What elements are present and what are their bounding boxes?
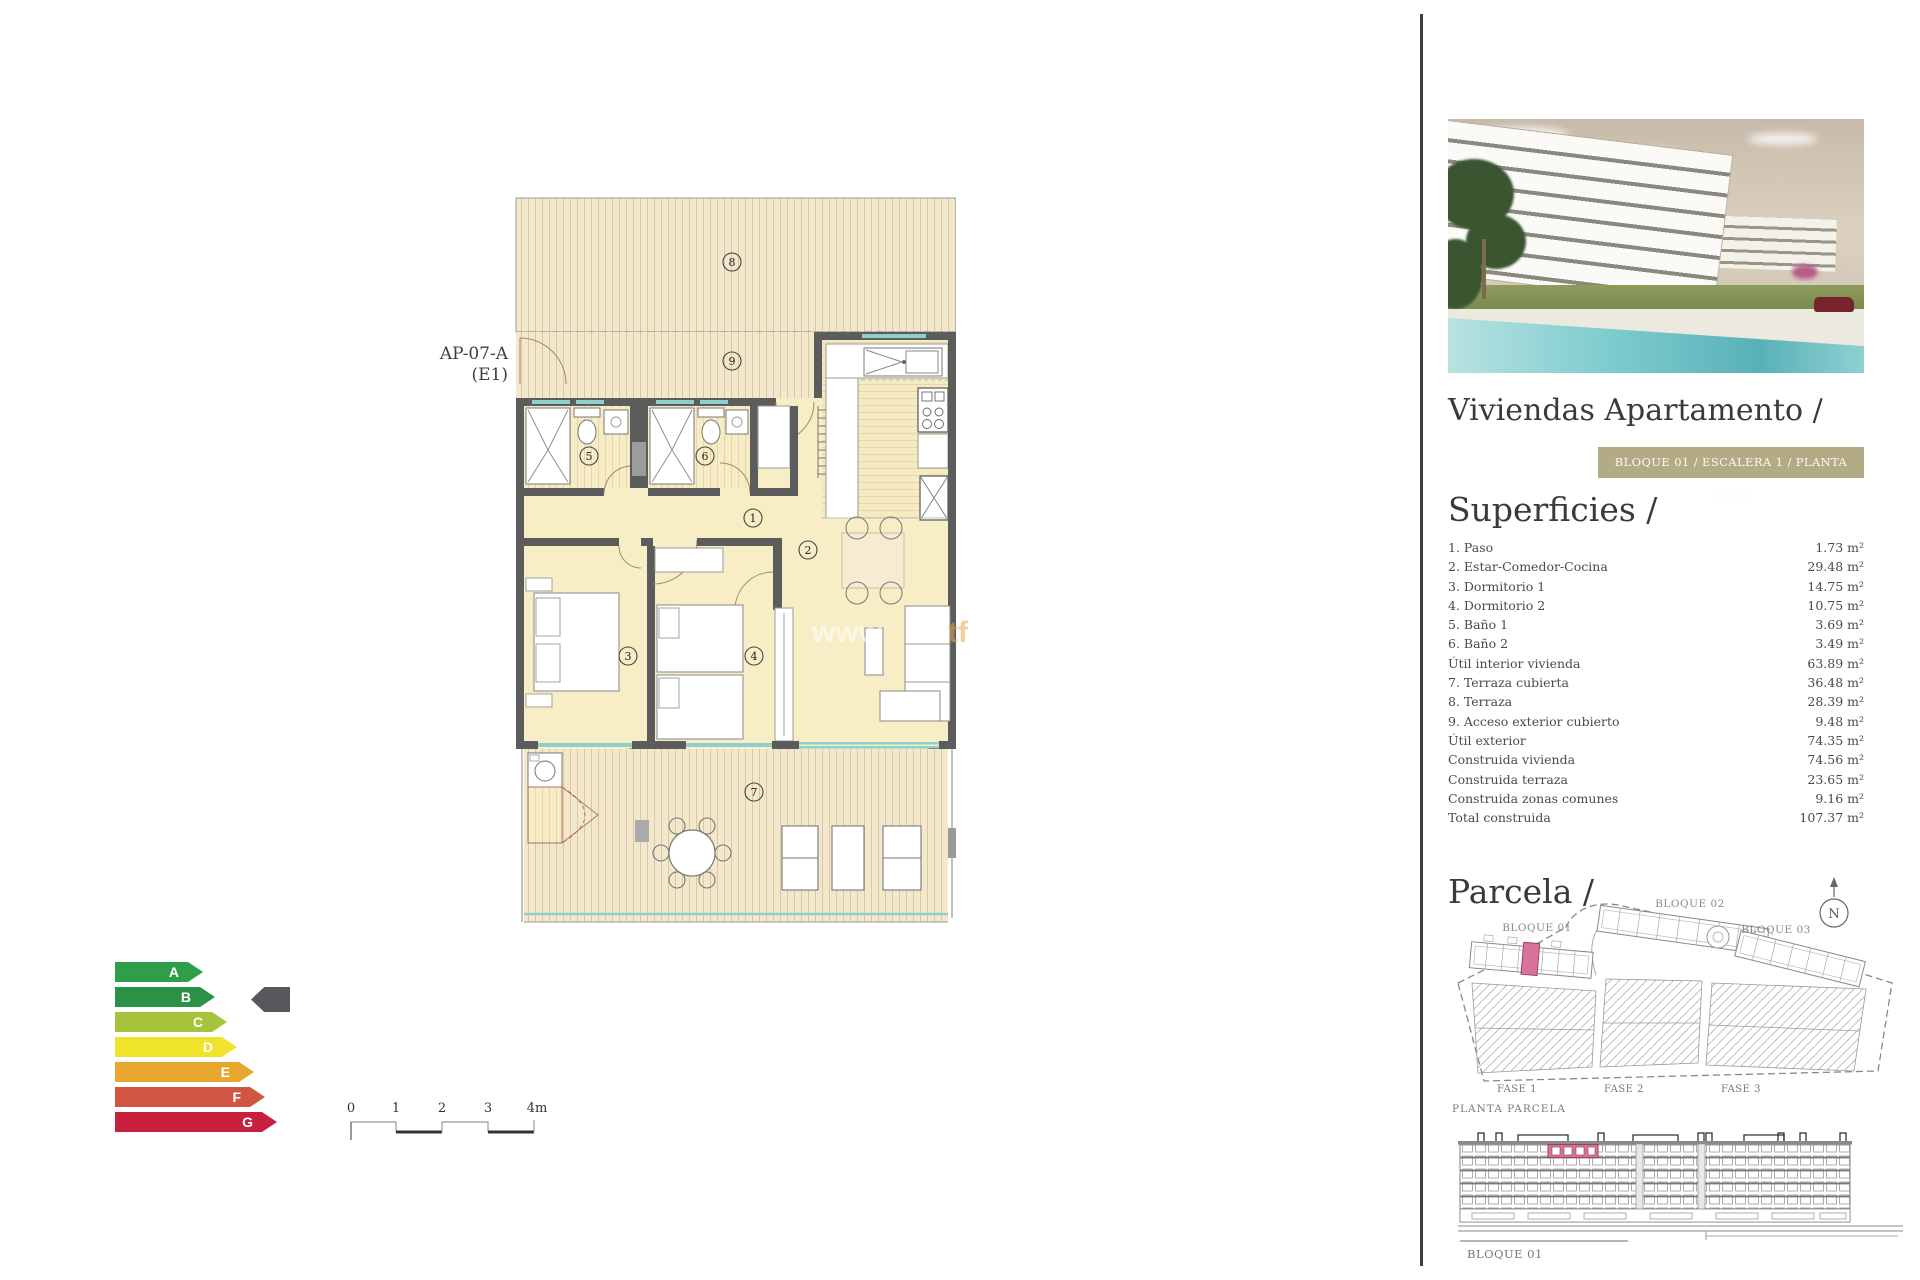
bloque-03-footprint <box>1735 931 1865 987</box>
floor-plan: 8 9 5 6 1 2 3 4 7 <box>514 188 956 932</box>
energy-bar-a: A <box>115 962 203 982</box>
building-elevation: BLOQUE 01 <box>1448 1128 1908 1272</box>
room-label-7: 7 <box>751 786 758 799</box>
photo-car <box>1814 297 1854 312</box>
table-row: Útil interior vivienda63.89 m² <box>1448 654 1864 673</box>
scale-tick-3: 3 <box>484 1101 492 1116</box>
scale-bar: 0 1 2 3 4m <box>346 1098 556 1150</box>
scale-tick-0: 0 <box>347 1101 355 1116</box>
toilet-2-icon <box>702 420 720 444</box>
planta-parcela-caption: PLANTA PARCELA <box>1452 1103 1566 1115</box>
scale-tick-1: 1 <box>392 1101 400 1116</box>
table-row: 3. Dormitorio 114.75 m² <box>1448 577 1864 596</box>
superficies-table: 1. Paso1.73 m² 2. Estar-Comedor-Cocina29… <box>1448 538 1864 827</box>
page-title: Viviendas Apartamento / <box>1448 393 1868 428</box>
highlighted-unit <box>1521 942 1540 975</box>
elevation-caption: BLOQUE 01 <box>1467 1247 1543 1261</box>
wardrobe-icon <box>655 548 723 572</box>
room-label-4: 4 <box>751 650 758 663</box>
superficies-heading: Superficies / <box>1448 490 1657 529</box>
north-arrow-icon: N <box>1820 877 1848 927</box>
table-row: 1. Paso1.73 m² <box>1448 538 1864 557</box>
toilet-1-icon <box>578 420 596 444</box>
planter-icon <box>635 820 649 842</box>
table-row: Total construida107.37 m² <box>1448 808 1864 827</box>
table-row: 7. Terraza cubierta36.48 m² <box>1448 673 1864 692</box>
table-row: 4. Dormitorio 210.75 m² <box>1448 596 1864 615</box>
unit-code-line1: AP-07-A <box>408 344 508 365</box>
loungers-icon <box>782 826 921 890</box>
bloque-01-label: BLOQUE 01 <box>1502 922 1572 934</box>
watermark: wwwtf <box>812 616 1042 660</box>
unit-code-label: AP-07-A (E1) <box>408 344 508 386</box>
energy-rating-chart: A B C D E F G <box>115 962 335 1142</box>
energy-bar-b: B <box>115 987 215 1007</box>
room-label-8: 8 <box>729 256 736 269</box>
bloque-03-label: BLOQUE 03 <box>1741 924 1811 936</box>
page: AP-07-A (E1) <box>0 0 1920 1280</box>
floor-plan-drawing: 8 9 5 6 1 2 3 4 7 <box>514 188 956 932</box>
sink-1-icon <box>604 410 628 434</box>
energy-bar-c: C <box>115 1012 227 1032</box>
bloque-01-footprint <box>1469 934 1594 980</box>
project-photo <box>1448 119 1864 373</box>
washing-machine-icon <box>528 753 562 787</box>
scale-tick-4: 4m <box>527 1101 548 1116</box>
energy-bar-e: E <box>115 1062 254 1082</box>
north-label: N <box>1828 907 1839 922</box>
terrace-8-deck <box>516 198 956 332</box>
table-row: Construida vivienda74.56 m² <box>1448 750 1864 769</box>
table-row: 6. Baño 23.49 m² <box>1448 634 1864 653</box>
fase-3-label: FASE 3 <box>1721 1084 1761 1095</box>
photo-flowers <box>1792 265 1818 279</box>
terrace-closet <box>528 787 562 843</box>
table-row: Construida zonas comunes9.16 m² <box>1448 789 1864 808</box>
room-label-1: 1 <box>750 512 757 525</box>
panel-divider <box>1420 14 1423 1266</box>
room-label-6: 6 <box>702 450 709 463</box>
location-banner: BLOQUE 01 / ESCALERA 1 / PLANTA ÁTICO <box>1598 447 1864 478</box>
parking-fase-3 <box>1706 983 1866 1071</box>
table-row: 2. Estar-Comedor-Cocina29.48 m² <box>1448 557 1864 576</box>
energy-bar-g: G <box>115 1112 277 1132</box>
energy-bar-d: D <box>115 1037 237 1057</box>
unit-code-line2: (E1) <box>408 365 508 386</box>
room-label-5: 5 <box>586 450 593 463</box>
room-label-9: 9 <box>729 355 736 368</box>
sink-2-icon <box>726 410 748 434</box>
scale-tick-2: 2 <box>438 1101 446 1116</box>
energy-bar-f: F <box>115 1087 265 1107</box>
fase-1-label: FASE 1 <box>1497 1084 1537 1095</box>
room-label-3: 3 <box>625 650 632 663</box>
dining-table-icon <box>842 533 904 588</box>
bloque-02-label: BLOQUE 02 <box>1655 898 1725 910</box>
table-row: 8. Terraza28.39 m² <box>1448 692 1864 711</box>
table-row: Útil exterior74.35 m² <box>1448 731 1864 750</box>
table-row: 5. Baño 13.69 m² <box>1448 615 1864 634</box>
table-row: Construida terraza23.65 m² <box>1448 770 1864 789</box>
table-row: 9. Acceso exterior cubierto9.48 m² <box>1448 712 1864 731</box>
terrace-table-icon <box>669 830 715 876</box>
fase-2-label: FASE 2 <box>1604 1084 1644 1095</box>
parcel-map: N BLOQUE 01 BLOQUE 02 BLOQUE 03 FASE 1 F… <box>1446 875 1906 1119</box>
room-label-2: 2 <box>805 544 812 557</box>
